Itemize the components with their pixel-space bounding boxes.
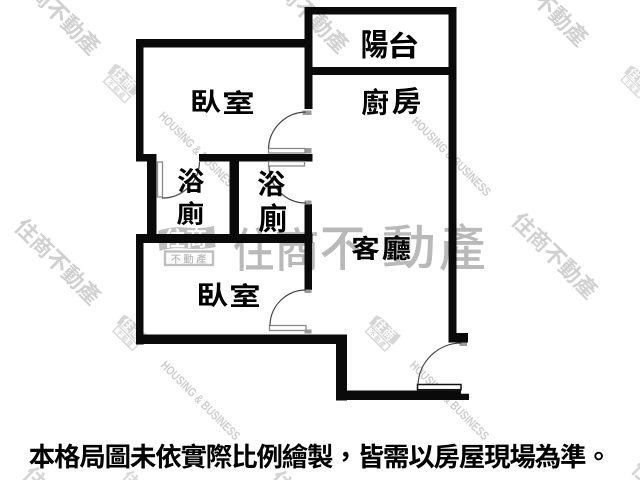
svg-text:HOUSING & BUSINESS: HOUSING & BUSINESS	[407, 358, 492, 443]
svg-text:HOUSING & BUSINESS: HOUSING & BUSINESS	[158, 358, 243, 443]
